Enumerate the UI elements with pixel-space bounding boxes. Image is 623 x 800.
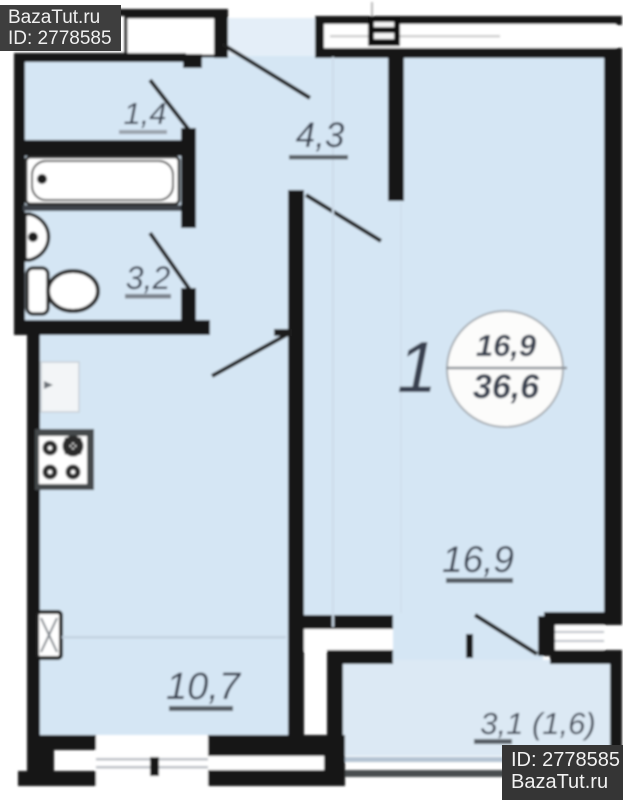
svg-text:36,6: 36,6 xyxy=(473,368,540,406)
svg-text:BazaTut.ru: BazaTut.ru xyxy=(8,7,100,28)
svg-text:BazaTut.ru: BazaTut.ru xyxy=(511,771,608,793)
svg-text:16,9: 16,9 xyxy=(476,328,537,363)
svg-text:3,2: 3,2 xyxy=(126,260,171,296)
svg-text:3,1 (1,6): 3,1 (1,6) xyxy=(480,706,595,741)
svg-text:10,7: 10,7 xyxy=(166,666,242,708)
svg-text:16,9: 16,9 xyxy=(442,539,514,580)
svg-text:1,4: 1,4 xyxy=(123,96,166,131)
svg-text:ID: 2778585: ID: 2778585 xyxy=(8,28,112,49)
svg-text:1: 1 xyxy=(397,328,437,408)
svg-text:ID: 2778585: ID: 2778585 xyxy=(511,749,620,771)
svg-text:4,3: 4,3 xyxy=(296,116,345,155)
